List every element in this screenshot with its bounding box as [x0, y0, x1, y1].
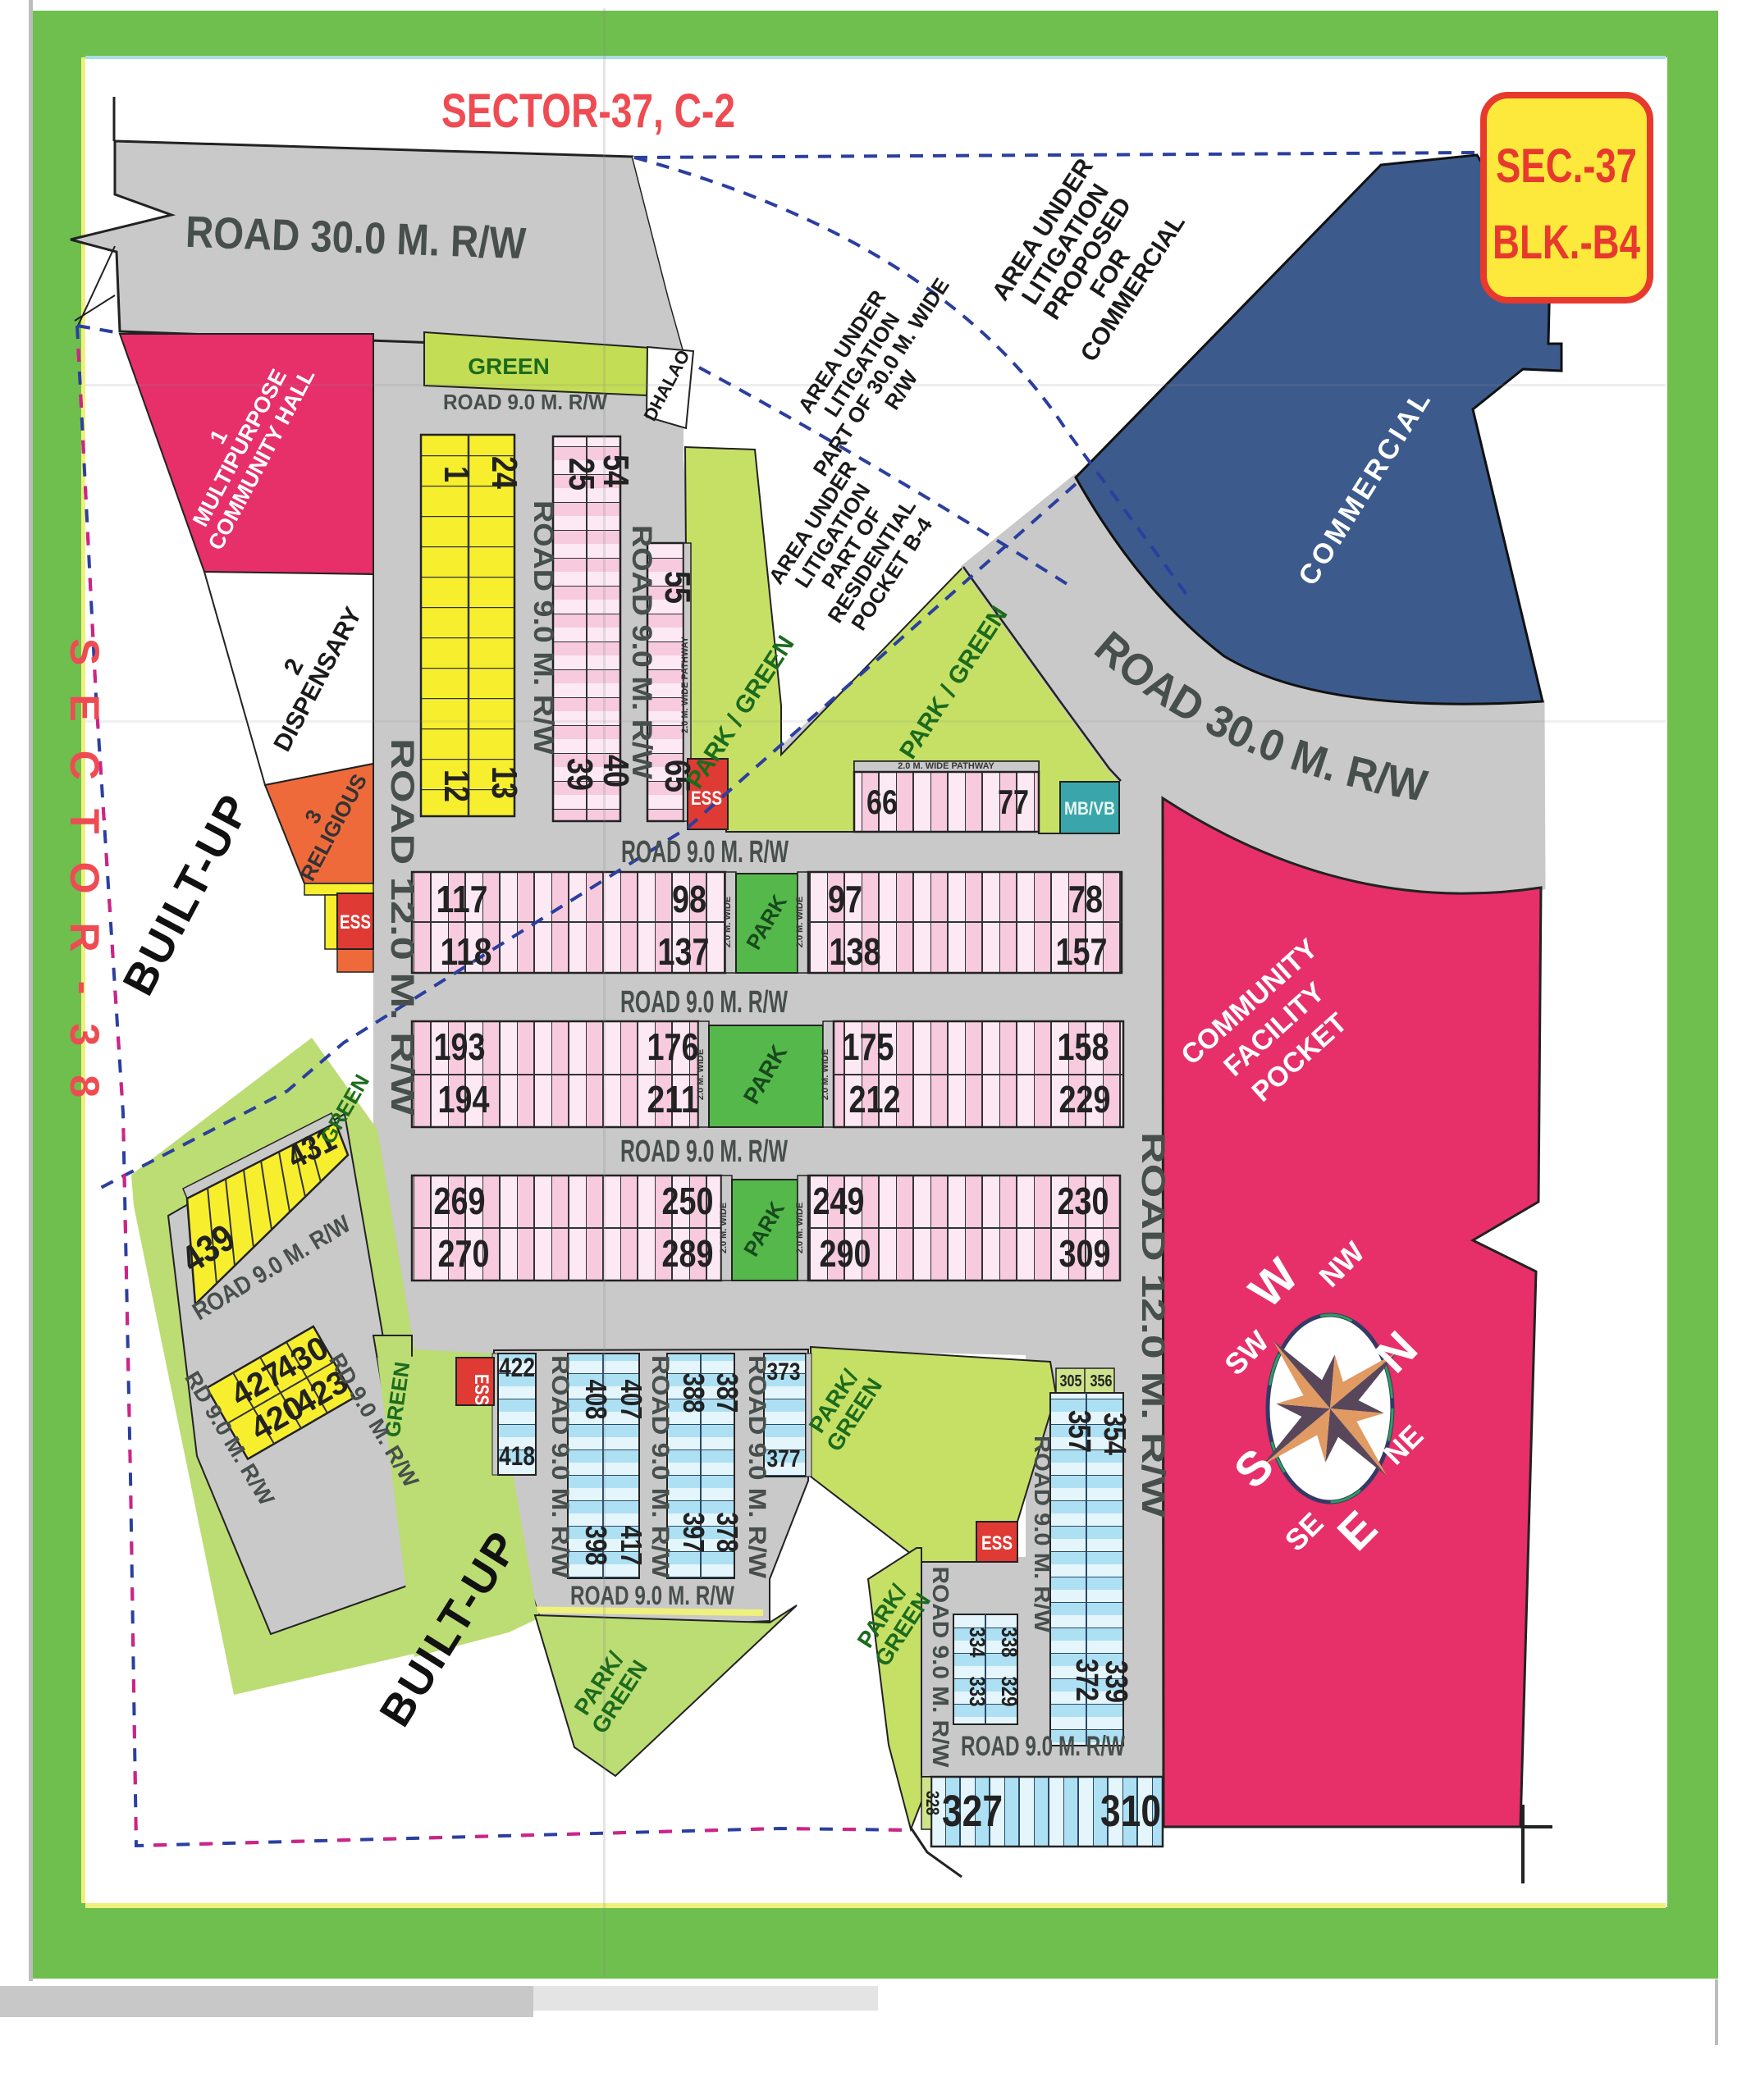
svg-text:ROAD 9.0 M. R/W: ROAD 9.0 M. R/W [546, 1355, 574, 1579]
svg-text:269: 269 [434, 1180, 486, 1222]
svg-text:289: 289 [662, 1232, 714, 1275]
svg-text:97: 97 [828, 878, 862, 920]
svg-text:ESS: ESS [981, 1532, 1013, 1554]
svg-text:305: 305 [1060, 1372, 1082, 1390]
svg-text:ESS: ESS [691, 787, 722, 810]
svg-text:SECTOR-37, C-2: SECTOR-37, C-2 [441, 84, 735, 138]
svg-text:309: 309 [1059, 1232, 1111, 1275]
svg-text:329: 329 [997, 1677, 1022, 1707]
svg-text:378: 378 [711, 1513, 744, 1553]
svg-text:13: 13 [484, 766, 524, 799]
svg-text:334: 334 [965, 1627, 990, 1658]
svg-text:327: 327 [942, 1787, 1003, 1836]
svg-text:117: 117 [437, 878, 488, 920]
svg-text:ROAD 9.0 M. R/W: ROAD 9.0 M. R/W [626, 525, 657, 780]
svg-text:397: 397 [677, 1513, 711, 1553]
svg-text:12: 12 [437, 769, 477, 802]
svg-text:GREEN: GREEN [468, 354, 550, 379]
svg-text:157: 157 [1056, 930, 1108, 973]
svg-text:270: 270 [438, 1232, 490, 1275]
svg-text:407: 407 [615, 1380, 648, 1420]
svg-text:137: 137 [658, 930, 710, 973]
svg-text:417: 417 [615, 1526, 648, 1566]
svg-text:ROAD 9.0 M. R/W: ROAD 9.0 M. R/W [928, 1567, 953, 1769]
svg-text:338: 338 [997, 1627, 1022, 1658]
svg-text:372: 372 [1069, 1659, 1104, 1701]
svg-text:24: 24 [484, 456, 524, 489]
svg-text:388: 388 [677, 1373, 711, 1413]
svg-text:354: 354 [1097, 1413, 1132, 1455]
svg-text:310: 310 [1100, 1787, 1161, 1836]
svg-text:BLK.-B4: BLK.-B4 [1493, 216, 1640, 269]
svg-text:ROAD 9.0 M. R/W: ROAD 9.0 M. R/W [647, 1355, 674, 1579]
svg-text:387: 387 [711, 1373, 744, 1413]
svg-text:ROAD 9.0 M. R/W: ROAD 9.0 M. R/W [621, 835, 789, 870]
svg-text:212: 212 [849, 1078, 901, 1121]
svg-text:ROAD 9.0 M. R/W: ROAD 9.0 M. R/W [570, 1581, 735, 1610]
svg-text:MB/VB: MB/VB [1064, 798, 1115, 819]
svg-text:2.0 M. WIDE PATHWAY: 2.0 M. WIDE PATHWAY [898, 761, 994, 771]
svg-text:356: 356 [1090, 1372, 1113, 1390]
svg-text:2.0 M. WIDE: 2.0 M. WIDE [723, 897, 733, 947]
svg-text:40: 40 [596, 755, 636, 787]
svg-text:339: 339 [1099, 1660, 1133, 1703]
svg-text:39: 39 [560, 758, 600, 791]
svg-text:ROAD 12.0 M. R/W: ROAD 12.0 M. R/W [1135, 1132, 1171, 1518]
svg-text:2.0 M. WIDE: 2.0 M. WIDE [795, 897, 805, 947]
svg-text:ROAD 12.0 M. R/W: ROAD 12.0 M. R/W [384, 738, 420, 1116]
svg-text:ROAD 9.0 M. R/W: ROAD 9.0 M. R/W [961, 1731, 1126, 1762]
svg-text:54: 54 [596, 454, 636, 487]
svg-text:422: 422 [499, 1353, 535, 1382]
svg-text:78: 78 [1068, 878, 1103, 920]
svg-text:176: 176 [647, 1025, 699, 1068]
svg-text:25: 25 [561, 458, 601, 491]
svg-text:357: 357 [1062, 1410, 1096, 1453]
svg-text:408: 408 [579, 1380, 613, 1420]
svg-text:2.0 M. WIDE: 2.0 M. WIDE [719, 1203, 729, 1253]
svg-text:250: 250 [662, 1180, 714, 1222]
svg-text:229: 229 [1059, 1078, 1111, 1121]
svg-text:138: 138 [830, 930, 881, 973]
svg-text:ESS: ESS [470, 1374, 492, 1405]
svg-text:373: 373 [767, 1358, 801, 1386]
svg-text:2.0 M. WIDE: 2.0 M. WIDE [696, 1049, 706, 1100]
svg-text:2.0 M. WIDE PATHWAY: 2.0 M. WIDE PATHWAY [680, 636, 690, 733]
svg-text:ROAD 9.0 M. R/W: ROAD 9.0 M. R/W [443, 390, 607, 414]
svg-text:2.0 M. WIDE: 2.0 M. WIDE [795, 1203, 805, 1253]
svg-text:ROAD 9.0 M. R/W: ROAD 9.0 M. R/W [620, 985, 788, 1020]
svg-text:290: 290 [820, 1232, 871, 1275]
svg-text:398: 398 [579, 1526, 613, 1566]
svg-text:SEC.-37: SEC.-37 [1496, 139, 1637, 193]
svg-text:377: 377 [767, 1445, 801, 1472]
svg-text:66: 66 [866, 783, 898, 821]
svg-text:ROAD 9.0 M. R/W: ROAD 9.0 M. R/W [1030, 1436, 1055, 1633]
svg-text:2.0 M. WIDE: 2.0 M. WIDE [821, 1049, 830, 1100]
svg-text:230: 230 [1058, 1180, 1109, 1222]
svg-text:333: 333 [965, 1677, 990, 1707]
svg-text:211: 211 [647, 1078, 699, 1121]
svg-text:328: 328 [922, 1791, 943, 1815]
svg-text:SECTOR-38: SECTOR-38 [62, 638, 107, 1098]
svg-text:ROAD 9.0 M. R/W: ROAD 9.0 M. R/W [528, 500, 559, 756]
svg-text:98: 98 [672, 878, 706, 920]
svg-text:175: 175 [843, 1025, 894, 1068]
svg-text:193: 193 [434, 1025, 486, 1068]
svg-text:158: 158 [1058, 1025, 1109, 1068]
svg-text:55: 55 [657, 571, 697, 604]
svg-text:ESS: ESS [340, 911, 371, 934]
svg-text:118: 118 [441, 930, 492, 973]
svg-text:1: 1 [437, 466, 477, 482]
svg-text:249: 249 [813, 1180, 865, 1222]
svg-text:77: 77 [998, 783, 1029, 821]
svg-text:ROAD 9.0 M. R/W: ROAD 9.0 M. R/W [620, 1134, 788, 1169]
svg-text:194: 194 [438, 1078, 490, 1121]
svg-text:418: 418 [499, 1441, 535, 1471]
